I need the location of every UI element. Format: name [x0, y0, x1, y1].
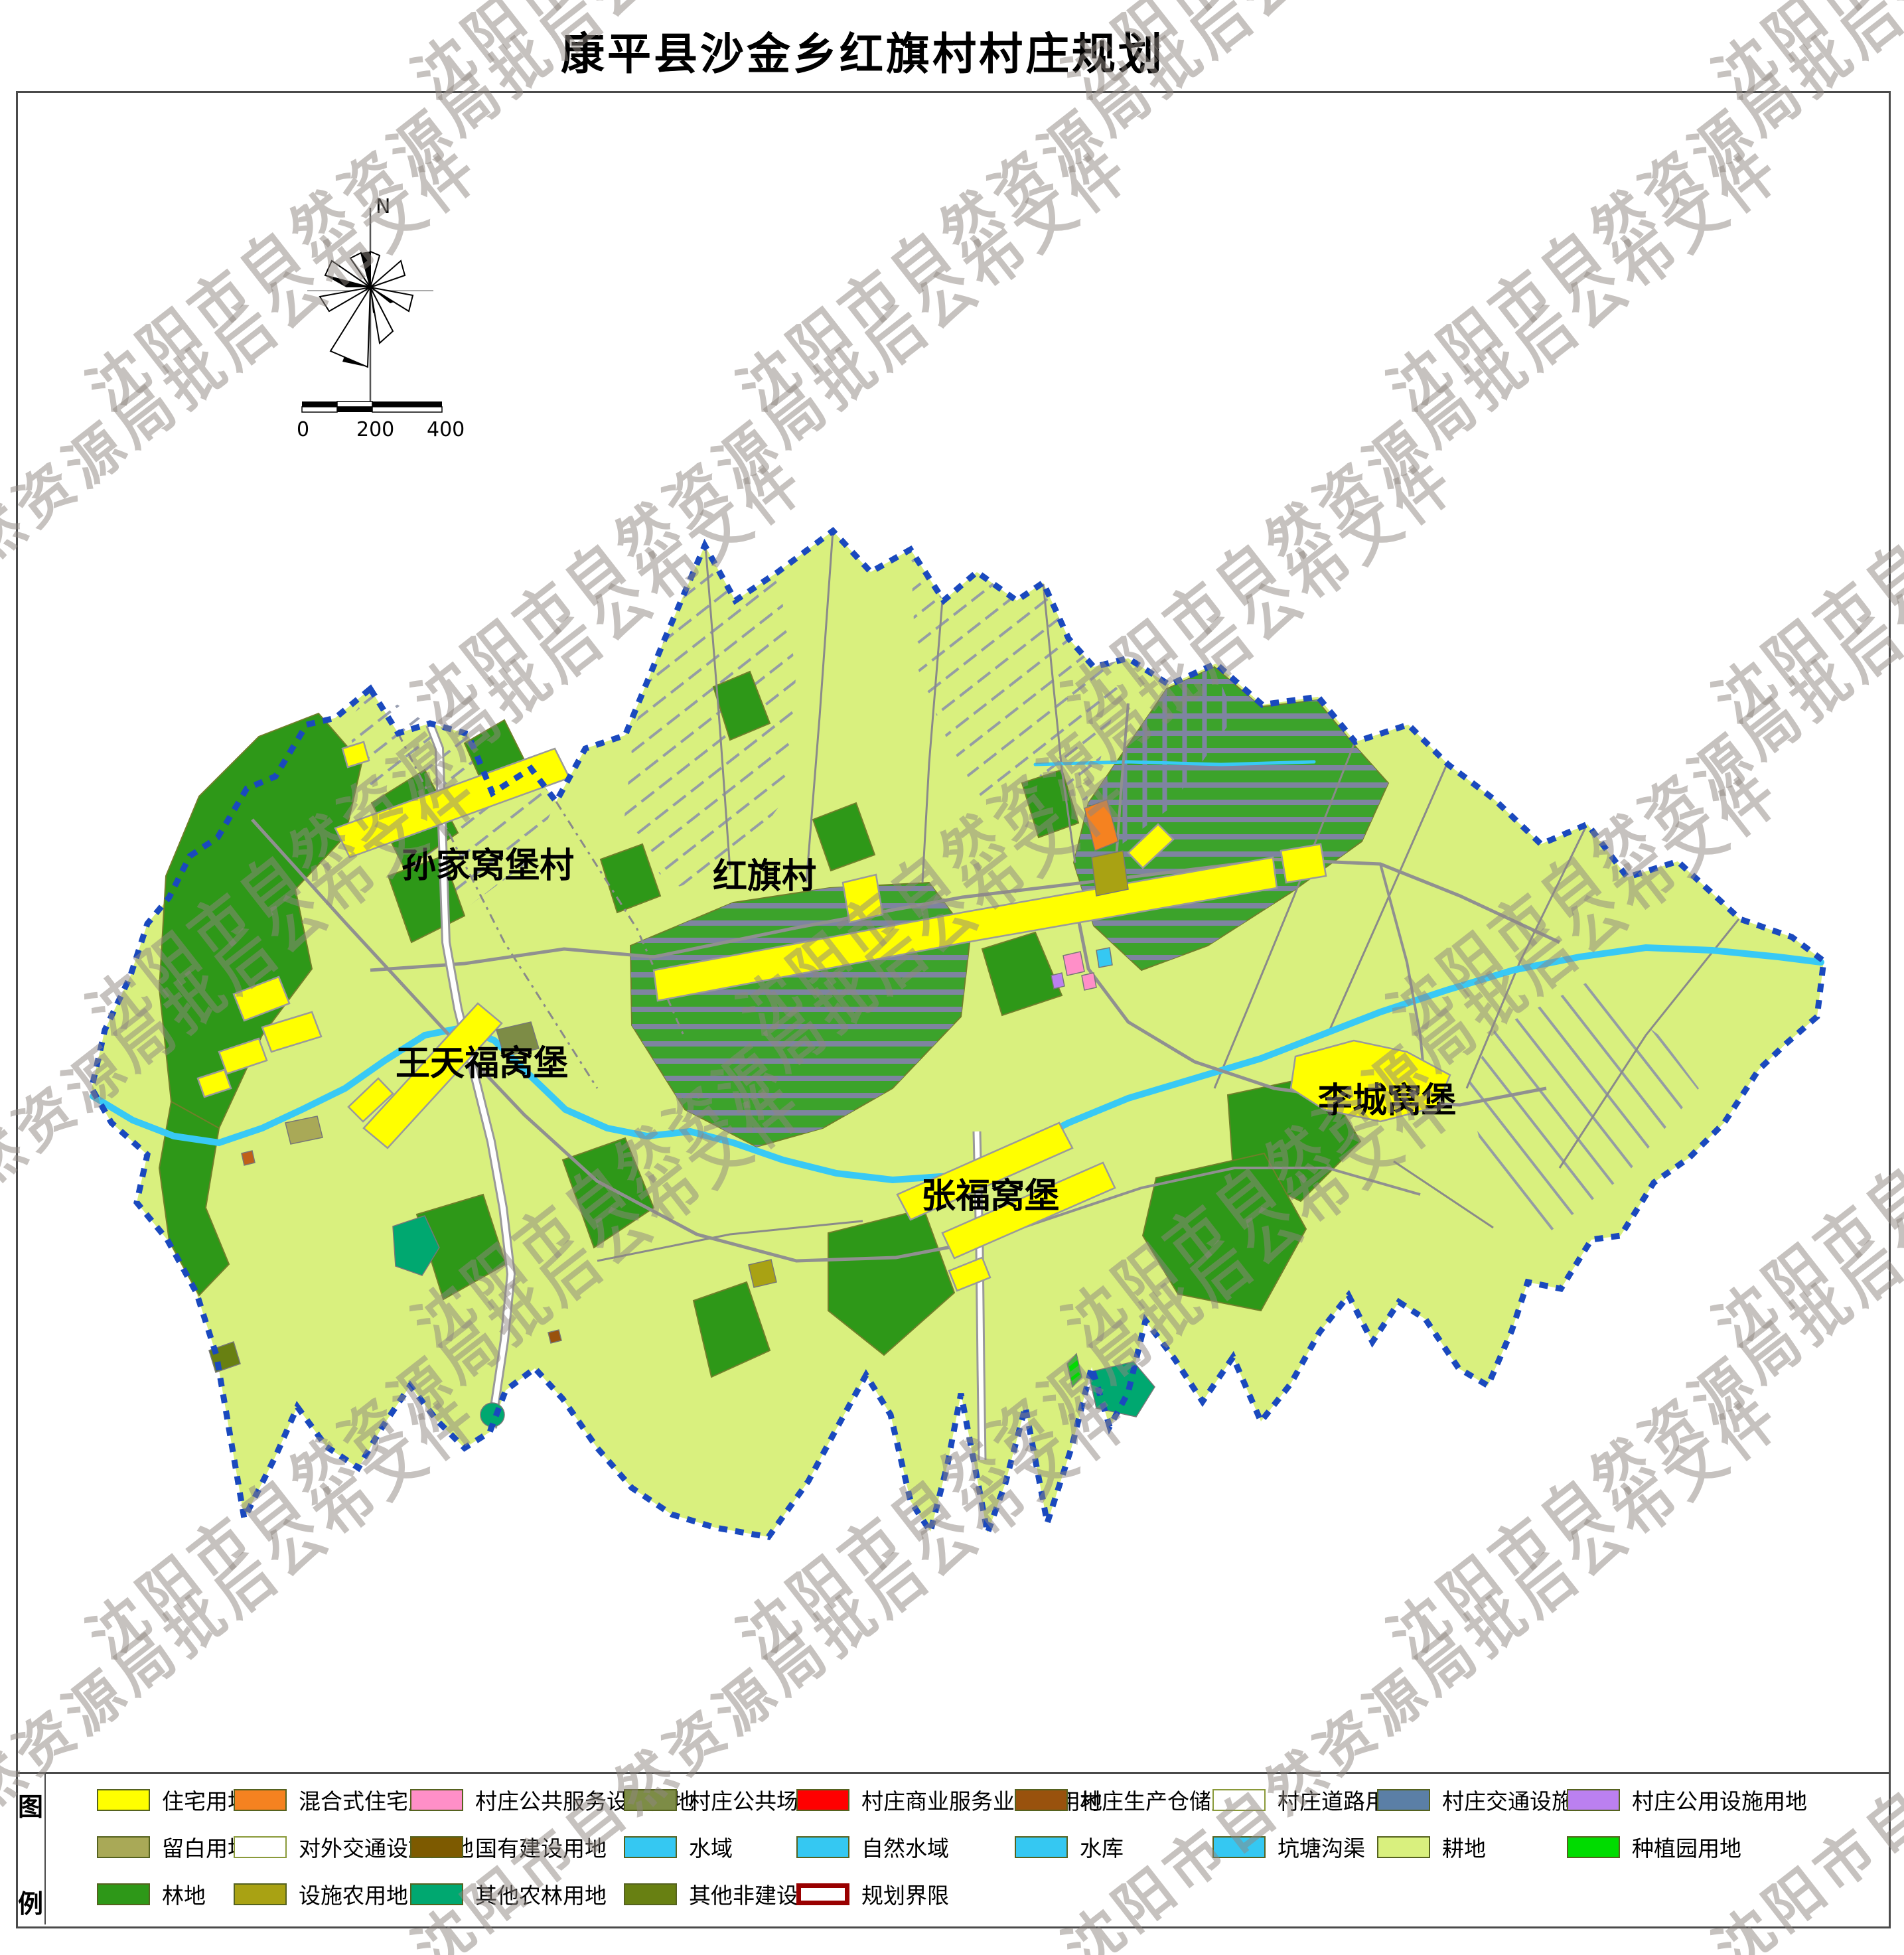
legend-item: 水域: [624, 1831, 733, 1863]
legend-label: 耕地: [1442, 1831, 1486, 1863]
legend-item: 留白用地: [97, 1831, 250, 1863]
legend-item: 耕地: [1377, 1831, 1486, 1863]
legend-label: 自然水域: [861, 1831, 949, 1863]
legend-swatch: [97, 1883, 150, 1905]
legend-swatch: [410, 1883, 463, 1905]
legend-panel-label-top: 图: [16, 1786, 45, 1823]
legend-swatch: [624, 1883, 677, 1905]
legend-swatch: [97, 1836, 150, 1858]
legend-swatch: [624, 1836, 677, 1858]
legend-swatch: [1015, 1836, 1068, 1858]
legend-item: 种植园用地: [1567, 1831, 1741, 1863]
legend-swatch: [1567, 1789, 1620, 1811]
legend-swatch: [796, 1789, 849, 1811]
legend-swatch: [1377, 1789, 1430, 1811]
sheet-frame: [16, 91, 1891, 1928]
legend-label: 其他农林用地: [475, 1878, 607, 1910]
legend-swatch: [1567, 1836, 1620, 1858]
legend-swatch: [234, 1836, 287, 1858]
legend-label: 坑塘沟渠: [1278, 1831, 1365, 1863]
legend-item: 其他农林用地: [410, 1878, 607, 1910]
legend-swatch: [97, 1789, 150, 1811]
legend-label: 规划界限: [861, 1878, 949, 1910]
legend-label: 国有建设用地: [475, 1831, 607, 1863]
legend-label: 水库: [1080, 1831, 1124, 1863]
legend-swatch: [624, 1789, 677, 1811]
legend-item: 住宅用地: [97, 1784, 250, 1816]
page-title: 康平县沙金乡红旗村村庄规划: [0, 19, 1725, 82]
legend-swatch: [234, 1883, 287, 1905]
plan-sheet: 康平县沙金乡红旗村村庄规划 图 例 住宅用地混合式住宅用地村庄公共服务设施用地村…: [0, 0, 1904, 1955]
legend-item: 规划界限: [796, 1878, 949, 1910]
legend-item: 设施农用地: [234, 1878, 408, 1910]
legend-panel-label-bottom: 例: [16, 1883, 45, 1920]
legend-swatch: [1377, 1836, 1430, 1858]
legend-item: 村庄公共场地: [624, 1784, 820, 1816]
legend-swatch: [796, 1883, 849, 1905]
legend-item: 村庄公用设施用地: [1567, 1784, 1807, 1816]
legend-label: 种植园用地: [1632, 1831, 1741, 1863]
legend-swatch: [234, 1789, 287, 1811]
legend-swatch: [410, 1789, 463, 1811]
legend-swatch: [1015, 1789, 1068, 1811]
legend-item: 林地: [97, 1878, 206, 1910]
legend-label: 林地: [162, 1878, 206, 1910]
legend-item: 自然水域: [796, 1831, 949, 1863]
legend-swatch: [410, 1836, 463, 1858]
legend-swatch: [796, 1836, 849, 1858]
legend-label: 村庄公用设施用地: [1632, 1784, 1807, 1816]
legend-top-border: [16, 1772, 1889, 1774]
legend-item: 水库: [1015, 1831, 1124, 1863]
legend-swatch: [1212, 1789, 1266, 1811]
legend-swatch: [1212, 1836, 1266, 1858]
legend-item: 国有建设用地: [410, 1831, 607, 1863]
legend-label: 设施农用地: [299, 1878, 408, 1910]
legend-label: 水域: [689, 1831, 733, 1863]
legend-item: 坑塘沟渠: [1212, 1831, 1365, 1863]
